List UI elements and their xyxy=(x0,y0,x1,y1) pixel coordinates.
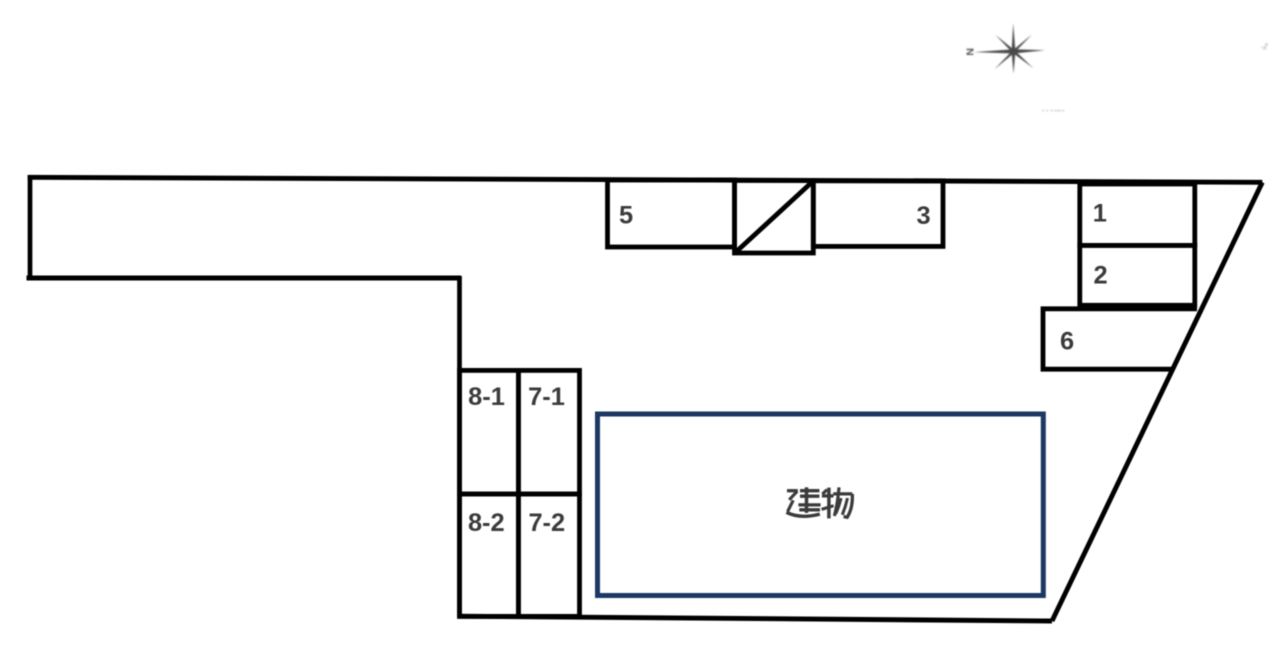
svg-text:7-2: 7-2 xyxy=(528,509,565,537)
svg-text:5: 5 xyxy=(619,202,633,230)
svg-text:7-1: 7-1 xyxy=(528,383,565,411)
svg-text:2: 2 xyxy=(1093,262,1107,290)
svg-text:8-1: 8-1 xyxy=(468,383,505,411)
svg-text:8-2: 8-2 xyxy=(468,509,505,537)
svg-text:N: N xyxy=(964,48,976,56)
svg-text:3: 3 xyxy=(916,202,930,230)
svg-text:6: 6 xyxy=(1060,328,1074,356)
svg-text:1: 1 xyxy=(1093,200,1107,228)
